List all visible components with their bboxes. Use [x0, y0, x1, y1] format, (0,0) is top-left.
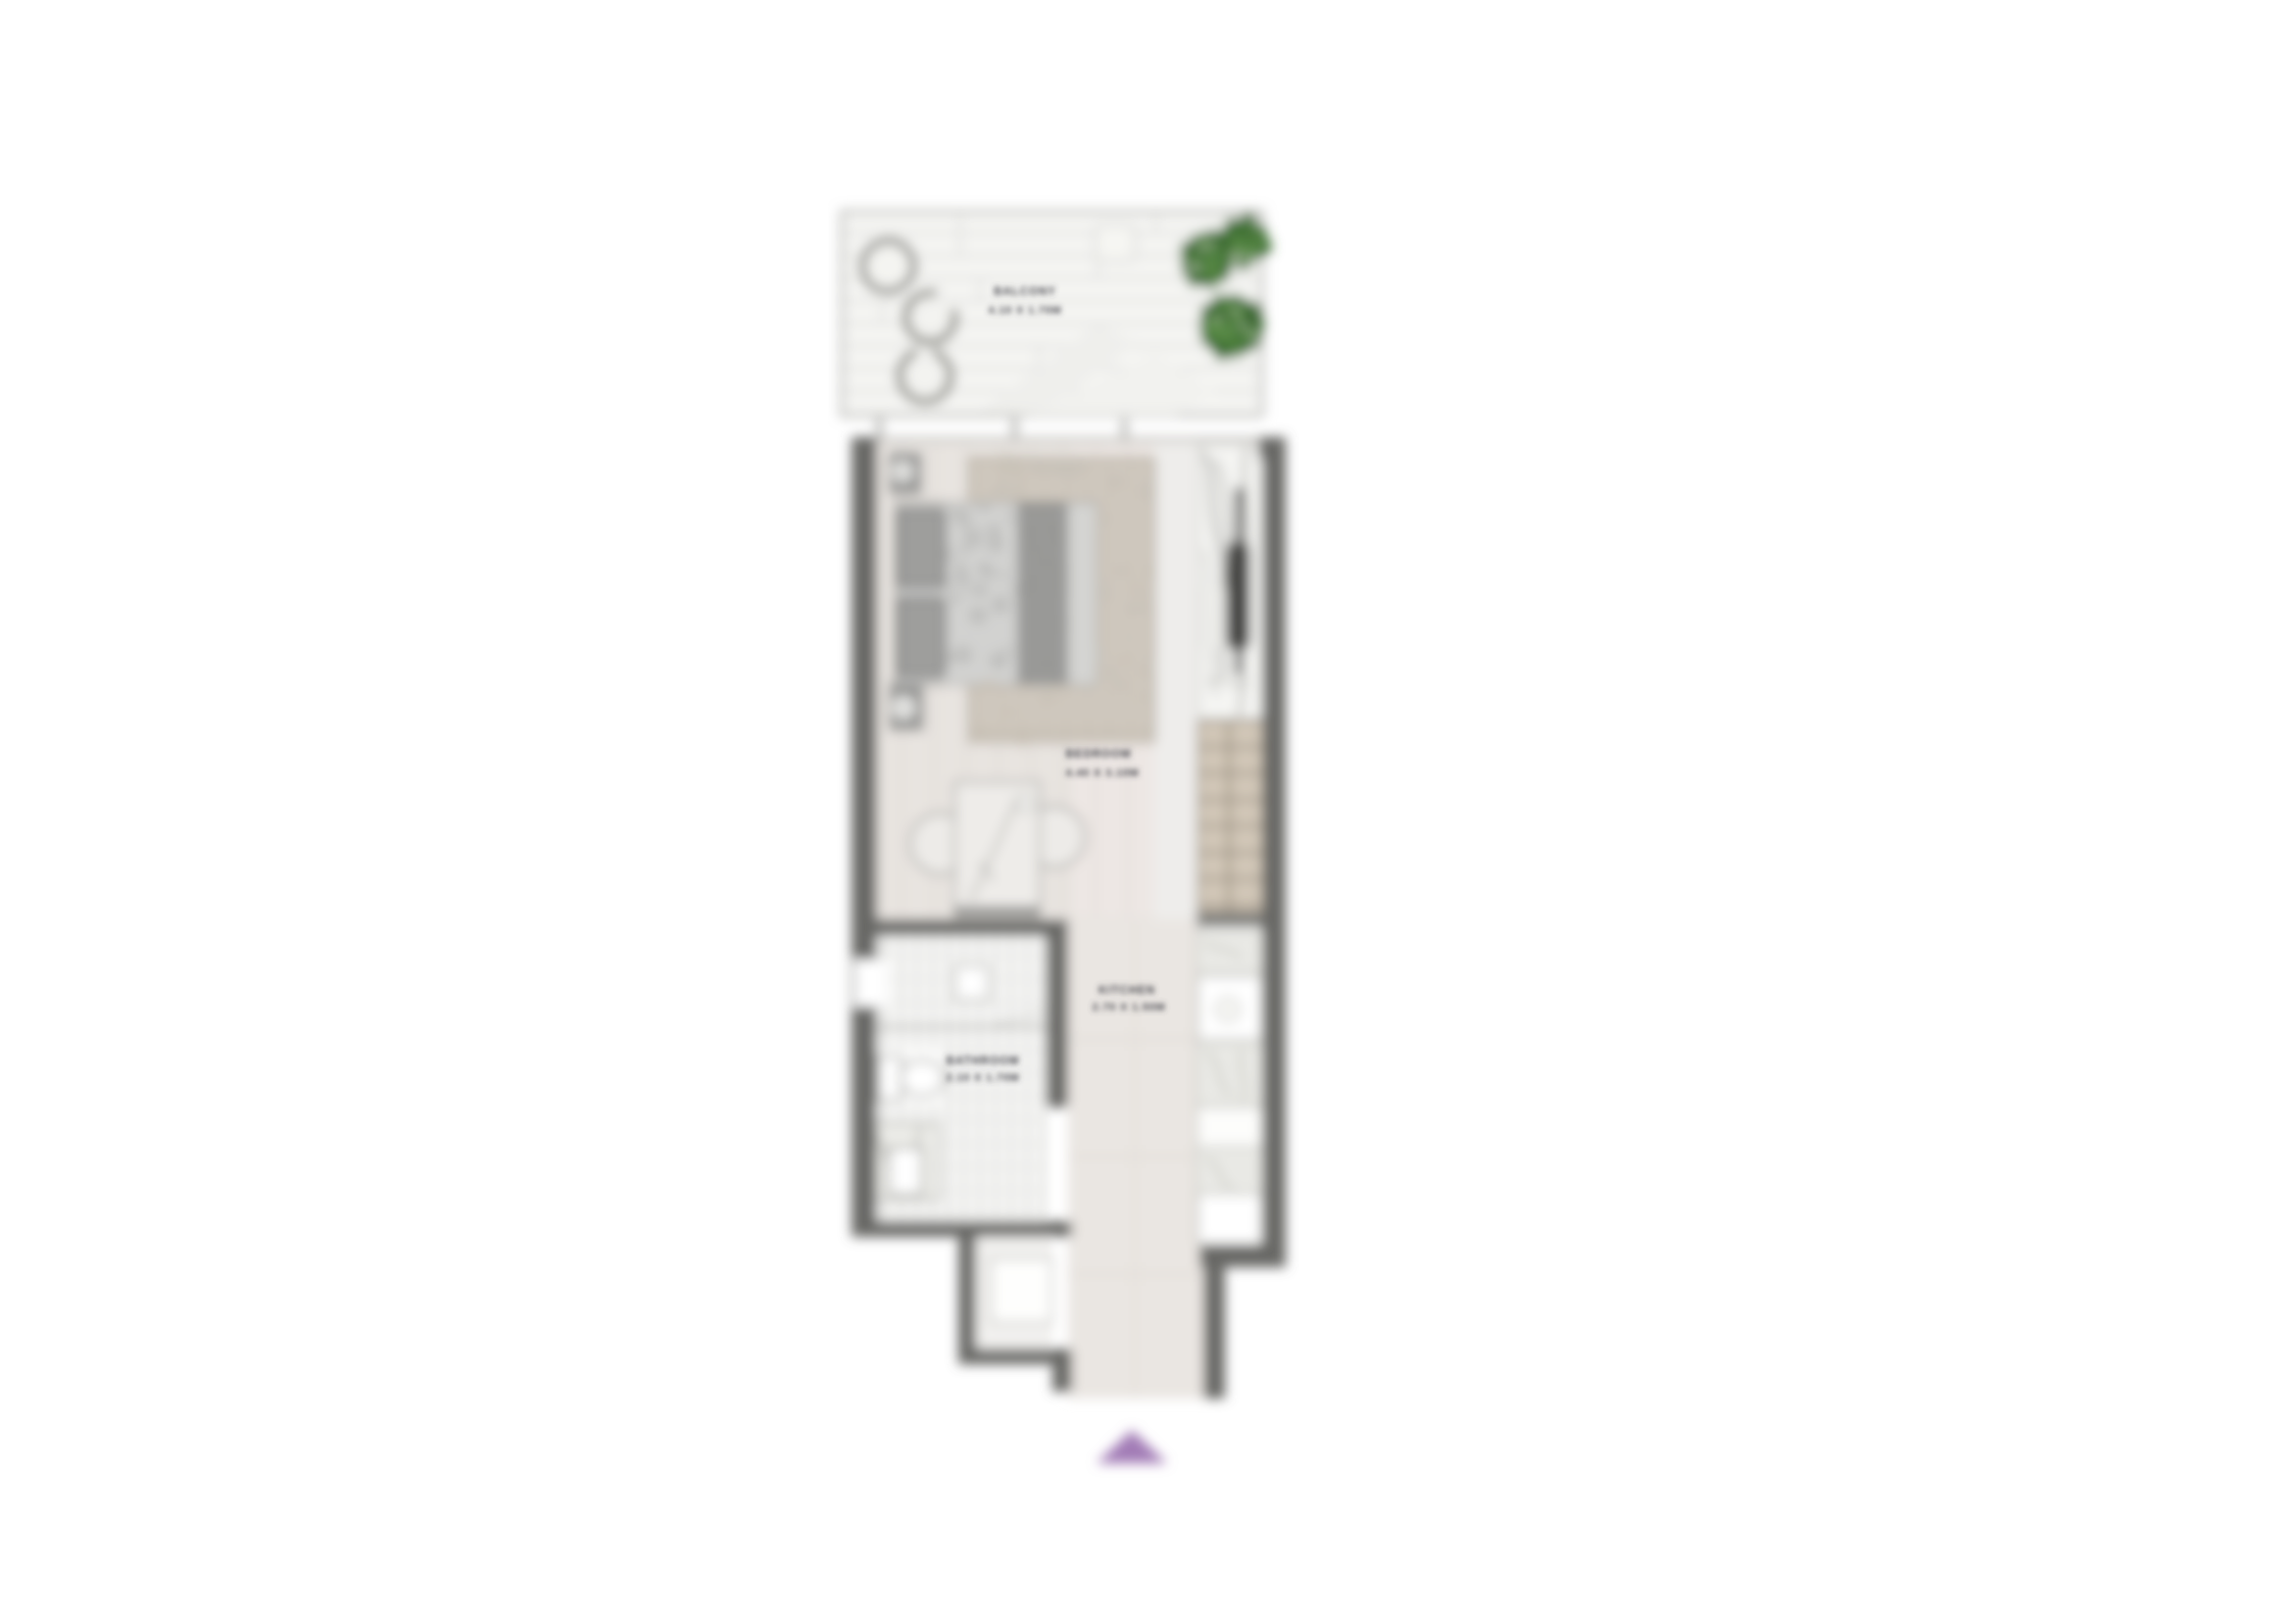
svg-text:BATHROOM: BATHROOM [947, 1056, 1020, 1067]
svg-text:2.10 X 1.70M: 2.10 X 1.70M [946, 1072, 1019, 1084]
svg-text:KITCHEN: KITCHEN [1099, 985, 1155, 997]
svg-text:4.10 X 1.70M: 4.10 X 1.70M [988, 305, 1061, 317]
svg-text:BALCONY: BALCONY [994, 286, 1056, 298]
svg-text:BEDROOM: BEDROOM [1065, 749, 1131, 761]
svg-text:2.70 X 1.50M: 2.70 X 1.50M [1092, 1002, 1165, 1013]
svg-text:4.40 X 3.10M: 4.40 X 3.10M [1065, 767, 1139, 779]
